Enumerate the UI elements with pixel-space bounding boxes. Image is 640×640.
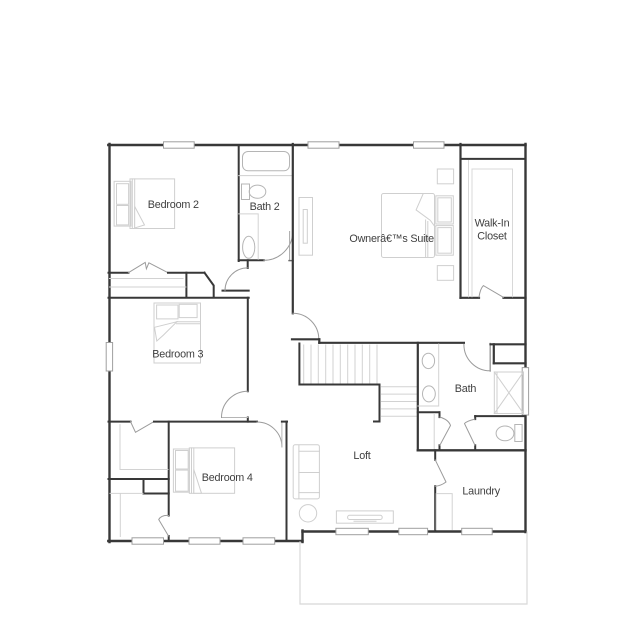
svg-text:Bath: Bath [455,383,477,395]
svg-text:Laundry: Laundry [462,485,500,497]
svg-text:Closet: Closet [477,231,507,243]
svg-text:Bath 2: Bath 2 [250,201,280,213]
svg-text:Loft: Loft [353,450,370,462]
svg-text:Bedroom 2: Bedroom 2 [148,199,199,211]
svg-text:Bedroom 4: Bedroom 4 [202,472,253,484]
svg-text:Ownerâ€™s Suite: Ownerâ€™s Suite [349,233,434,245]
svg-text:Bedroom 3: Bedroom 3 [152,349,203,361]
svg-text:Walk-In: Walk-In [475,217,510,229]
